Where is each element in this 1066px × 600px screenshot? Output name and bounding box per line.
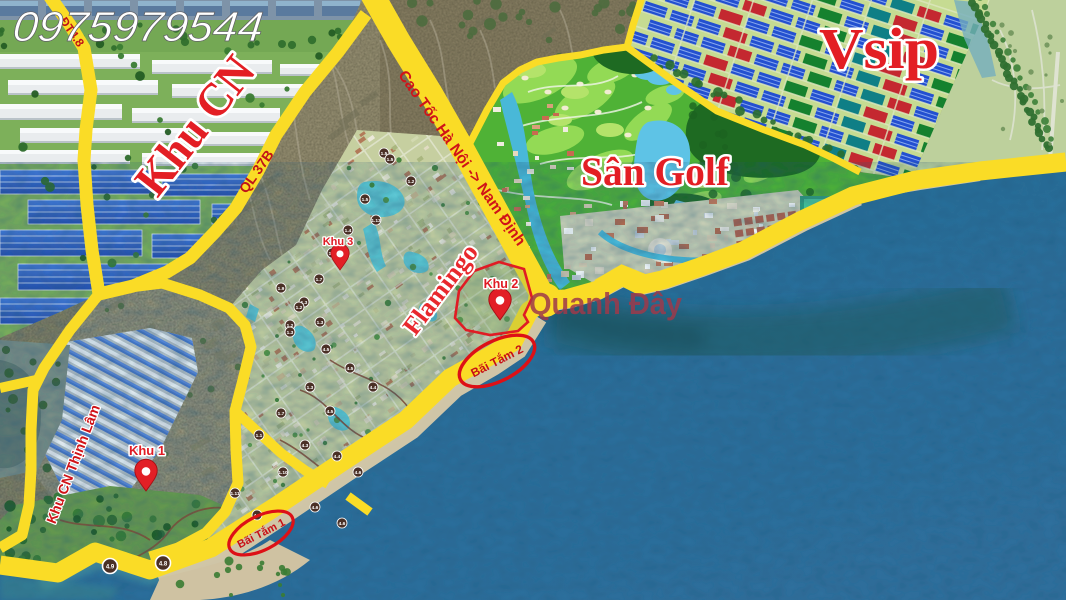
svg-text:4.8: 4.8 [159,562,168,568]
svg-text:1.10: 1.10 [278,470,288,476]
svg-text:Sân Golf: Sân Golf [581,149,730,194]
svg-text:4.5: 4.5 [327,409,334,415]
svg-text:1.4: 1.4 [345,228,352,234]
svg-text:Quanh Đây: Quanh Đây [529,286,683,321]
svg-text:1.5: 1.5 [387,157,394,163]
svg-text:Vsip: Vsip [819,16,939,81]
svg-text:4.5: 4.5 [323,347,330,353]
svg-text:4.5: 4.5 [347,366,354,372]
svg-text:4.9: 4.9 [106,565,115,571]
svg-text:1.7: 1.7 [278,411,285,417]
svg-text:1.5: 1.5 [362,197,369,203]
svg-text:1.3: 1.3 [317,320,324,326]
svg-text:1.2: 1.2 [408,179,415,185]
svg-text:1.3: 1.3 [287,330,294,336]
svg-text:1.13: 1.13 [371,218,381,224]
svg-text:Khu 1: Khu 1 [129,443,165,458]
svg-text:4.4: 4.4 [370,385,377,391]
svg-text:0975979544: 0975979544 [11,3,266,50]
svg-text:1.11: 1.11 [230,491,239,497]
svg-text:4.6: 4.6 [339,521,346,527]
svg-text:1.3: 1.3 [307,385,314,391]
svg-text:4.6: 4.6 [355,470,362,476]
svg-text:Khu 2: Khu 2 [484,277,519,291]
svg-text:1.9: 1.9 [278,286,285,292]
svg-text:4.6: 4.6 [312,505,319,511]
svg-text:4.3: 4.3 [302,443,309,449]
svg-text:Khu 3: Khu 3 [323,236,354,248]
svg-text:1.7: 1.7 [316,277,323,283]
svg-text:1.2: 1.2 [296,305,303,311]
svg-text:4.4: 4.4 [334,454,341,460]
svg-text:1.1: 1.1 [256,433,263,439]
